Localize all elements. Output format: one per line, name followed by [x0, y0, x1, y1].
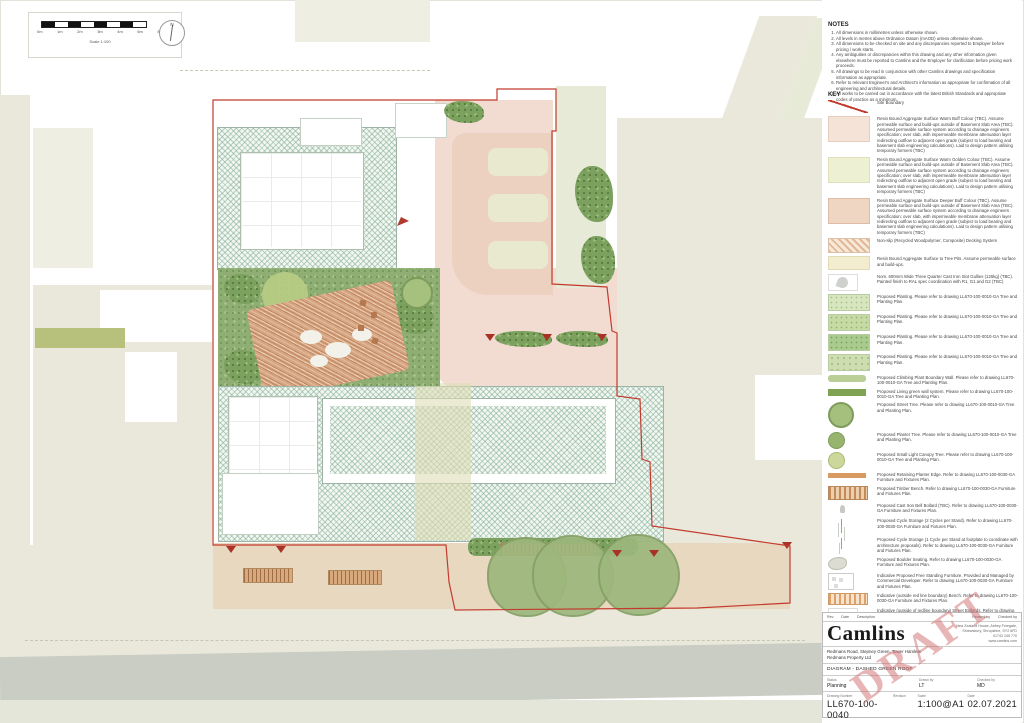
- site-plan: 0m1m2m3m4m6m8m Scale 1:100 N: [0, 0, 822, 723]
- key-item: Proposed Retaining Planter Edge. Refer t…: [828, 472, 1018, 483]
- parking-bay: [488, 241, 548, 269]
- scalebar-labels: 0m1m2m3m4m6m8m: [37, 29, 163, 34]
- bollard-marker: [276, 546, 286, 553]
- scalebar-segment: [133, 22, 146, 27]
- scale-bar: 0m1m2m3m4m6m8m Scale 1:100 N: [28, 12, 182, 58]
- resin-golden-swatch: [828, 157, 870, 183]
- north-needle: [170, 25, 173, 41]
- building-a-notch: [300, 118, 362, 146]
- context-block: [33, 128, 93, 268]
- key-section: KEY Site BoundaryResin Bound Aggregate S…: [828, 92, 1018, 699]
- building-a-rooms: [241, 153, 361, 247]
- key-item: Proposed Timber Bench. Refer to drawing …: [828, 486, 1018, 500]
- notes-heading: NOTES: [828, 22, 1016, 28]
- description-label: Description: [857, 615, 875, 619]
- key-item: Indicative Proposed Free Standing Furnit…: [828, 573, 1018, 590]
- address-line[interactable]: www.camlins.com: [956, 639, 1017, 644]
- road-verge-bottom: [0, 700, 822, 723]
- scalebar-label: 3m: [97, 29, 103, 34]
- address-line: Shrewsbury, Shropshire, SY2 6FD: [956, 629, 1017, 634]
- deck-furniture: [371, 312, 378, 319]
- building-b-rooms: [229, 397, 315, 473]
- bollard-swatch: [828, 503, 856, 515]
- note-item: All drawings to be read in conjunction w…: [836, 69, 1016, 80]
- checked-by-field-label: Checked by: [977, 678, 1017, 682]
- stepping-stone: [300, 330, 322, 344]
- drawing-number-label: Drawing Number: [827, 694, 885, 698]
- key-item: Proposed Boulder Seating. Refer to drawi…: [828, 557, 1018, 570]
- drawing-title: DIAGRAM - DASHED GREEN ROOF: [823, 664, 1021, 676]
- key-item: Indicative (outside red line boundary) B…: [828, 593, 1018, 605]
- scalebar-segments: [41, 21, 147, 28]
- kerb-line: [25, 640, 805, 641]
- key-item-label: Site Boundary: [877, 100, 904, 105]
- key-item: Proposed Planting. Please refer to drawi…: [828, 294, 1018, 311]
- key-item: Proposed Planter Tree. Please refer to d…: [828, 432, 1018, 449]
- scalebar-segment: [81, 22, 94, 27]
- key-item-label: Proposed Small Light Canopy Tree. Please…: [877, 452, 1018, 463]
- key-item-label: Proposed Planter Tree. Please refer to d…: [877, 432, 1018, 443]
- drawn-by-value: LT: [919, 683, 969, 689]
- key-item-label: Nom. 600mm Wide Three Quarter Cast Iron …: [877, 274, 1018, 285]
- plant-c-swatch: [828, 334, 870, 351]
- scale-label: Scale: [917, 694, 959, 698]
- key-item-label: Proposed Cast Iron Bell Bollard (TBC). R…: [877, 503, 1018, 514]
- canopy-tree-swatch: [828, 452, 845, 469]
- key-item: Proposed Cycle Storage (1 Cycle per Stan…: [828, 537, 1018, 553]
- checked-by-label: Checked by: [998, 615, 1017, 619]
- notes-section: NOTES All dimensions in millimetres unle…: [828, 22, 1016, 103]
- practice-address: New Zealand House, Abbey Foregate, Shrew…: [956, 623, 1017, 644]
- revision-label: Revision: [893, 694, 910, 698]
- key-item: Resin Bound Aggregate Surface Warm Buff …: [828, 116, 1018, 154]
- key-item: Resin Bound Aggregate Surface Warm Golde…: [828, 157, 1018, 195]
- plant-a-swatch: [828, 294, 870, 311]
- parking-bay: [488, 194, 548, 222]
- site-line-swatch: [828, 100, 868, 113]
- scalebar-label: 6m: [137, 29, 143, 34]
- note-item: Any ambiguities or discrepancies within …: [836, 52, 1016, 69]
- key-item-label: Resin Bound Aggregate Surface to Tree Pi…: [877, 256, 1018, 267]
- street-tree-swatch: [828, 402, 854, 428]
- building-a-entry: [395, 103, 447, 138]
- kerb-line: [180, 70, 430, 71]
- timber-bench-swatch: [828, 486, 868, 500]
- bollard-marker: [782, 542, 792, 549]
- legend-panel: NOTES All dimensions in millimetres unle…: [822, 0, 1022, 723]
- scalebar-segment: [120, 22, 133, 27]
- scale-value: 1:100@A1: [917, 699, 959, 710]
- gully-marker: [485, 334, 495, 341]
- scalebar-segment: [94, 22, 107, 27]
- key-item-label: Proposed Planting. Please refer to drawi…: [877, 314, 1018, 325]
- drawn-by-label: Drawn by: [919, 678, 969, 682]
- gully-swatch: [828, 274, 858, 291]
- key-list: Site BoundaryResin Bound Aggregate Surfa…: [828, 100, 1018, 696]
- scalebar-caption: Scale 1:100: [41, 39, 159, 44]
- key-item: Resin Bound Aggregate Surface to Tree Pi…: [828, 256, 1018, 270]
- north-letter: N: [160, 22, 184, 27]
- key-item-label: Proposed Cycle Storage (1 Cycle per Stan…: [877, 537, 1018, 553]
- scalebar-segment: [55, 22, 68, 27]
- north-arrow: N: [159, 20, 185, 46]
- key-item-label: Resin Bound Aggregate Surface Deeper Buf…: [877, 198, 1018, 236]
- key-item: Non-slip (Recycled Woodpolymer, Composit…: [828, 238, 1018, 253]
- scalebar-label: 0m: [37, 29, 43, 34]
- timber-bench: [243, 568, 293, 583]
- bollard-marker: [226, 546, 236, 553]
- key-item-label: Resin Bound Aggregate Surface Warm Golde…: [877, 157, 1018, 195]
- cycle1-swatch: [828, 537, 856, 553]
- key-item: Proposed Small Light Canopy Tree. Please…: [828, 452, 1018, 469]
- drawing-number-value: LL670-100-0040: [827, 699, 885, 721]
- key-item-label: Proposed Timber Bench. Refer to drawing …: [877, 486, 1018, 497]
- deck-furniture: [358, 325, 364, 331]
- key-item-label: Proposed Retaining Planter Edge. Refer t…: [877, 472, 1018, 483]
- key-item: Proposed Cycle Storage (2 Cycles per Sta…: [828, 518, 1018, 534]
- date-field-label: Date: [967, 694, 1017, 698]
- planter-tree: [401, 277, 433, 309]
- stepping-stone: [325, 342, 351, 358]
- gully-marker: [597, 334, 607, 341]
- key-item-label: Proposed Cycle Storage (2 Cycles per Sta…: [877, 518, 1018, 529]
- status-value: Planning: [827, 683, 911, 689]
- context-block: [295, 0, 430, 42]
- scalebar-label: 1m: [57, 29, 63, 34]
- planter-tree-swatch: [828, 432, 845, 449]
- project-block: Redmans Road, Stepney Green, Tower Hamle…: [823, 647, 1021, 664]
- resin-deeper-swatch: [828, 198, 870, 224]
- scalebar-segment: [107, 22, 120, 27]
- key-item: Proposed Living green wall system. Pleas…: [828, 389, 1018, 400]
- key-item-label: Proposed Planting. Please refer to drawi…: [877, 294, 1018, 305]
- resin-buff-swatch: [828, 116, 870, 142]
- key-item-label: Proposed Living green wall system. Pleas…: [877, 389, 1018, 400]
- status-label: Status: [827, 678, 911, 682]
- key-item-label: Indicative (outside red line boundary) B…: [877, 593, 1018, 604]
- ind-bench-swatch: [828, 593, 868, 605]
- scalebar-label: 4m: [117, 29, 123, 34]
- key-item: Resin Bound Aggregate Surface Deeper Buf…: [828, 198, 1018, 236]
- deck-furniture: [360, 300, 367, 307]
- scalebar-segment: [68, 22, 81, 27]
- client-name: Redmans Property Ltd: [827, 655, 1017, 661]
- gully-marker: [542, 334, 552, 341]
- camlins-logo: Camlins: [827, 623, 905, 644]
- key-heading: KEY: [828, 92, 1018, 98]
- key-item: Proposed Cast Iron Bell Bollard (TBC). R…: [828, 503, 1018, 515]
- street-tree: [598, 534, 680, 616]
- cycle2-swatch: [828, 518, 856, 534]
- tree-pit-swatch: [828, 256, 870, 270]
- context-gap: [755, 375, 822, 460]
- revised-by-label: Revised by: [972, 615, 990, 619]
- key-item-label: Proposed Planting. Please refer to drawi…: [877, 334, 1018, 345]
- climb-wall-swatch: [828, 375, 866, 382]
- key-item-label: Proposed Boulder Seating. Refer to drawi…: [877, 557, 1018, 568]
- key-item-label: Proposed Climbing Plant Boundary Wall. P…: [877, 375, 1018, 386]
- scalebar-label: 2m: [77, 29, 83, 34]
- key-item: Proposed Planting. Please refer to drawi…: [828, 354, 1018, 371]
- key-item: Proposed Planting. Please refer to drawi…: [828, 334, 1018, 351]
- living-wall-swatch: [828, 389, 866, 396]
- checked-by-value: MD: [977, 683, 1017, 689]
- scalebar-segment: [42, 22, 55, 27]
- date-value: 02.07.2021: [967, 699, 1017, 710]
- key-item: Nom. 600mm Wide Three Quarter Cast Iron …: [828, 274, 1018, 291]
- free-furniture-swatch: [828, 573, 854, 590]
- planter-edge-swatch: [828, 473, 866, 478]
- decking-swatch: [828, 238, 870, 253]
- grass-verge: [35, 328, 125, 348]
- key-item: Proposed Climbing Plant Boundary Wall. P…: [828, 375, 1018, 386]
- key-item: Site Boundary: [828, 100, 1018, 113]
- building-b-rooms-south: [222, 473, 319, 535]
- bollard-marker: [649, 550, 659, 557]
- rev-label: Rev: [827, 615, 833, 619]
- timber-bench: [328, 570, 382, 585]
- plant-b-swatch: [828, 314, 870, 331]
- context-gap: [125, 352, 177, 422]
- note-item: All dimensions to be checked on site and…: [836, 41, 1016, 52]
- parking-bay: [488, 148, 548, 176]
- maintenance-path: [415, 386, 471, 540]
- date-label: Date: [841, 615, 849, 619]
- key-item: Proposed Planting. Please refer to drawi…: [828, 314, 1018, 331]
- boulder-swatch: [828, 557, 847, 570]
- key-item-label: Indicative Proposed Free Standing Furnit…: [877, 573, 1018, 589]
- key-item-label: Proposed Street Tree. Please refer to dr…: [877, 402, 1018, 413]
- key-item: Proposed Street Tree. Please refer to dr…: [828, 402, 1018, 428]
- plant-d-swatch: [828, 354, 870, 371]
- drawing-sheet: 0m1m2m3m4m6m8m Scale 1:100 N NOTES All d…: [0, 0, 1024, 723]
- note-item: Refer to relevant Engineer's and Archite…: [836, 80, 1016, 91]
- stepping-stone: [310, 355, 328, 367]
- key-item-label: Proposed Planting. Please refer to drawi…: [877, 354, 1018, 365]
- bollard-marker: [612, 550, 622, 557]
- key-item-label: Resin Bound Aggregate Surface Warm Buff …: [877, 116, 1018, 154]
- title-block: Rev Date Description Revised by Checked …: [822, 612, 1022, 718]
- key-item-label: Non-slip (Recycled Woodpolymer, Composit…: [877, 238, 997, 243]
